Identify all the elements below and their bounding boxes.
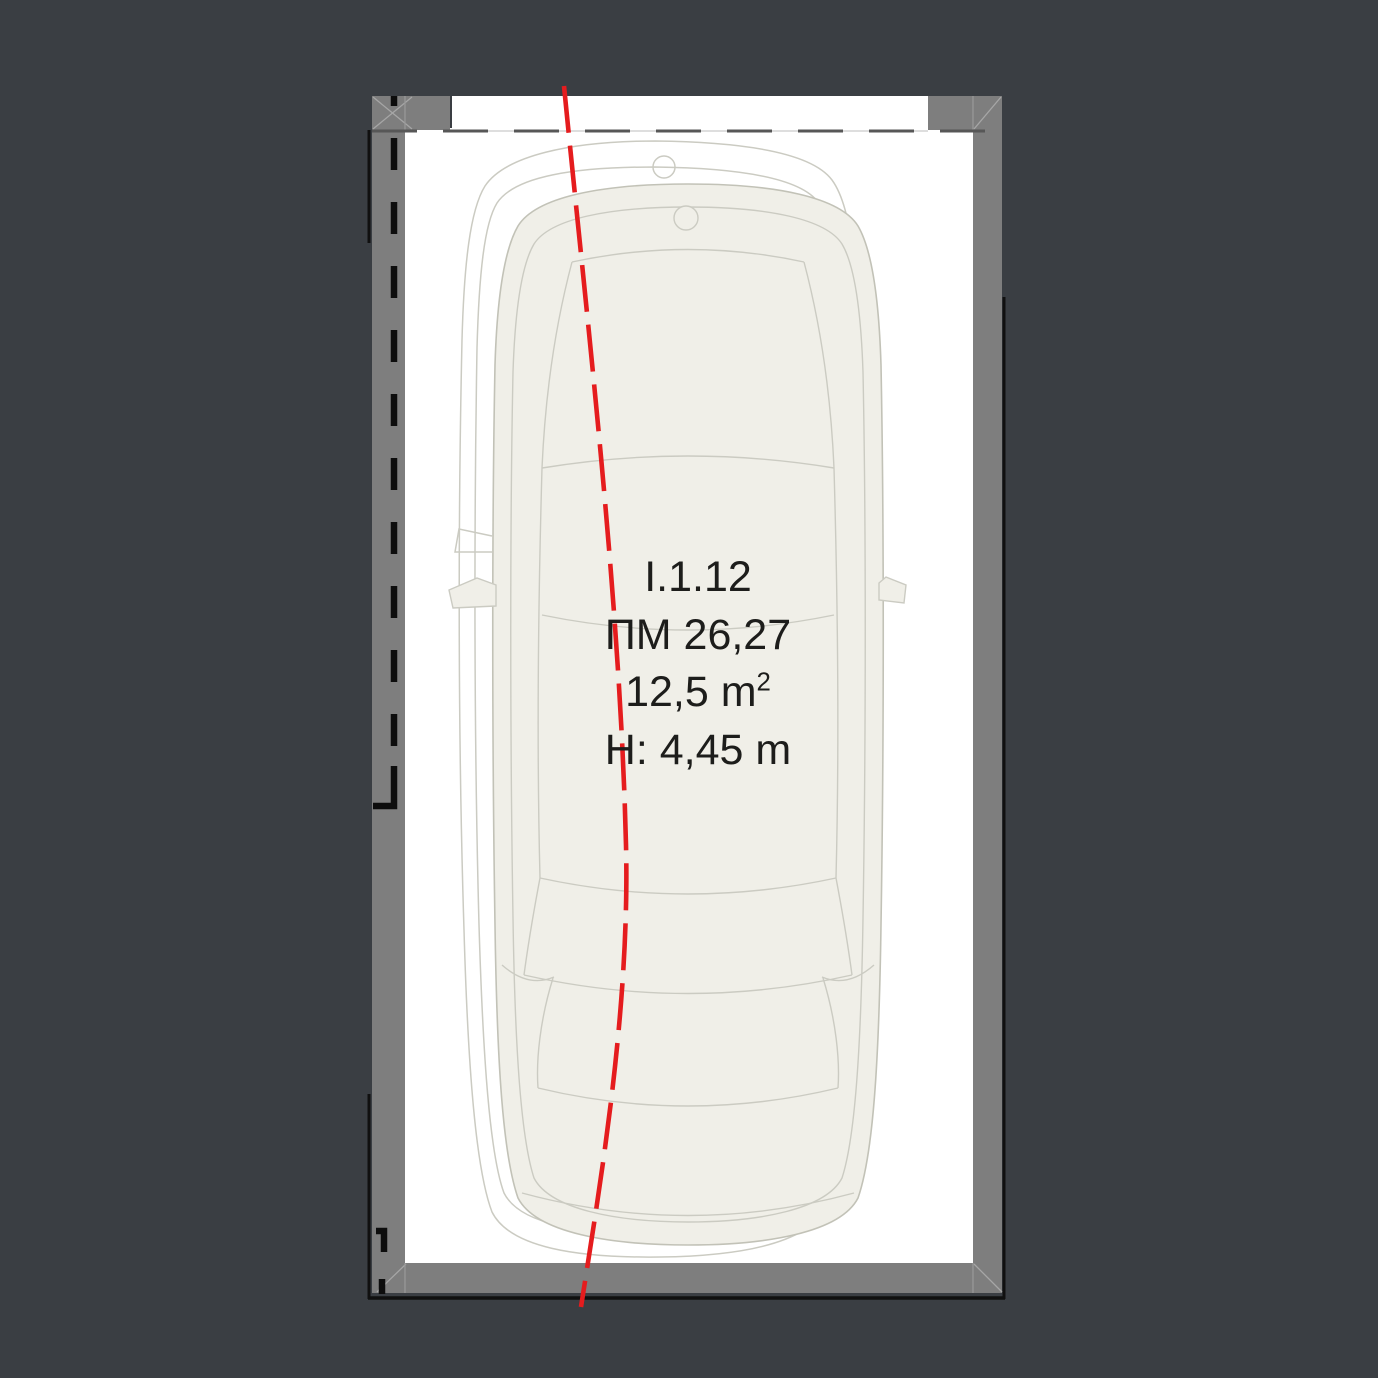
space-area-label: 12,5 m2 xyxy=(605,664,791,722)
area-value: 12,5 m xyxy=(625,668,756,716)
column-top-left xyxy=(372,96,450,130)
space-label-block: I.1.12 ПМ 26,27 12,5 m2 H: 4,45 m xyxy=(605,549,791,779)
wall-right xyxy=(973,96,1002,1293)
space-id-label: I.1.12 xyxy=(605,549,791,607)
wall-bottom xyxy=(372,1263,1002,1293)
space-height-label: H: 4,45 m xyxy=(605,722,791,780)
column-top-right xyxy=(928,96,1002,130)
wall-left xyxy=(372,96,405,1293)
entry-strip xyxy=(452,96,928,132)
car-roof-antenna xyxy=(674,206,698,230)
area-exponent: 2 xyxy=(757,669,771,697)
parking-floor-plan: I.1.12 ПМ 26,27 12,5 m2 H: 4,45 m xyxy=(0,0,1378,1378)
space-number-label: ПМ 26,27 xyxy=(605,607,791,665)
